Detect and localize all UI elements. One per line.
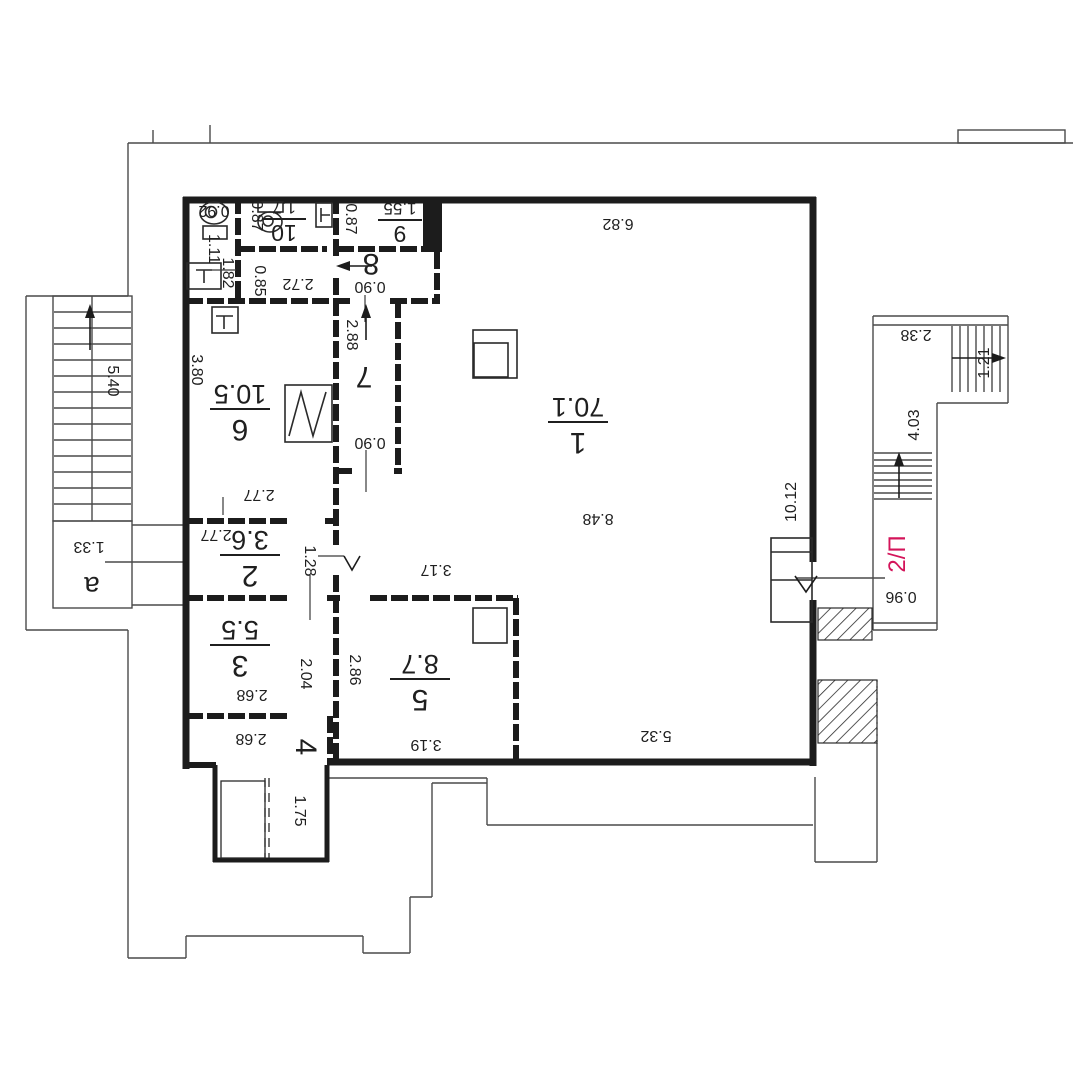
room-area: 10.5 xyxy=(214,379,267,409)
lower-floor-outline xyxy=(26,143,877,958)
dimension-label: 2.38 xyxy=(900,326,931,343)
dimension-label: 0.87 xyxy=(248,200,265,231)
dimension-label: 6.82 xyxy=(602,215,633,232)
dimension-label: 2.68 xyxy=(235,730,266,747)
sink-icon-2 xyxy=(316,203,332,227)
room-label-3: 35.5 xyxy=(210,615,270,682)
upper-floor-edge-step xyxy=(958,130,1065,143)
left-staircase xyxy=(53,296,186,608)
room-number: 8 xyxy=(363,247,380,280)
dimension-label: 3.17 xyxy=(420,561,451,578)
dimension-label: 3.19 xyxy=(410,736,441,753)
dimension-label: 2.77 xyxy=(200,526,231,543)
room-label-9: 91.55 xyxy=(378,199,422,247)
dimension-label: 0.92 xyxy=(198,202,229,219)
balcony-window xyxy=(221,778,269,858)
dimension-label: 10.12 xyxy=(783,482,800,522)
upper-floor-edge-line xyxy=(128,125,1073,143)
corridor-up-arrow xyxy=(361,304,371,340)
vent-shaft-icon-2 xyxy=(473,608,507,643)
room-number: 6 xyxy=(232,413,249,446)
sink-icon-3 xyxy=(212,307,238,333)
room-number: 4 xyxy=(289,739,322,756)
room-area: 70.1 xyxy=(552,392,605,422)
dimension-label: 2.72 xyxy=(282,275,313,292)
dimension-label: 0.85 xyxy=(251,265,268,296)
room-number: 1 xyxy=(570,426,587,459)
dimension-label: 2.88 xyxy=(343,319,360,350)
hatch-block-lower xyxy=(818,680,877,743)
room-number: 3 xyxy=(232,649,249,682)
dimension-label: 2.86 xyxy=(346,654,363,685)
dimension-label: 2.04 xyxy=(297,658,314,689)
vent-shaft-icon xyxy=(473,330,517,378)
dimension-label: 0.87 xyxy=(342,203,359,234)
dimension-label: 8.48 xyxy=(582,510,613,527)
dimension-label: 1.75 xyxy=(291,795,308,826)
duct-box-icon xyxy=(771,538,812,622)
dimension-label: 1.82 xyxy=(219,257,236,288)
room-number: 2 xyxy=(242,559,259,592)
dimension-leaders xyxy=(200,270,366,620)
dimension-label: 0.90 xyxy=(354,434,385,451)
dimension-label: 5.40 xyxy=(104,365,121,396)
room-number: 5 xyxy=(412,683,429,716)
room-labels: 170.123.635.5458.7610.57891.55101.7 xyxy=(210,198,608,755)
hatched-wall-blocks xyxy=(818,608,877,743)
dimension-label: 1.28 xyxy=(301,545,318,576)
floor-plan-page: 170.123.635.5458.7610.57891.55101.7 6.82… xyxy=(0,0,1086,1080)
room-area: 3.6 xyxy=(231,525,269,555)
stair-floor-label: 2/П xyxy=(884,535,911,572)
room-label-10: 101.7 xyxy=(262,198,306,246)
dimension-label: 0.96 xyxy=(885,588,916,605)
right-stairs-up-arrow xyxy=(894,452,904,498)
dimension-label: 5.32 xyxy=(640,727,671,744)
dimension-label: 4.03 xyxy=(906,409,923,440)
stove-icon xyxy=(285,385,332,442)
room-label-4: 4 xyxy=(289,739,322,756)
hatch-block-upper xyxy=(818,608,872,640)
entrance-letter-label: a xyxy=(84,571,100,602)
dimension-label: 1.21 xyxy=(976,347,993,378)
room-area: 1.7 xyxy=(272,198,296,217)
room-number: 9 xyxy=(394,221,407,247)
pier-room9 xyxy=(423,197,442,252)
room-number: 7 xyxy=(356,360,373,393)
dimension-label: 1.33 xyxy=(73,538,104,555)
room-label-1: 170.1 xyxy=(548,392,608,459)
lower-stair-treads xyxy=(874,453,932,499)
sink-icon xyxy=(187,263,221,289)
exterior-walls xyxy=(183,197,816,862)
room-label-5: 58.7 xyxy=(390,649,450,716)
room-label-6: 610.5 xyxy=(210,379,270,446)
room-area: 1.55 xyxy=(383,199,416,218)
special-labels: 2/Пa xyxy=(84,535,911,602)
door-swing-arrow xyxy=(344,556,360,570)
dimension-label: 2.77 xyxy=(243,486,274,503)
landing-connect-lines xyxy=(105,525,186,605)
dimension-label: 0.90 xyxy=(354,278,385,295)
room-area: 8.7 xyxy=(401,649,439,679)
dimension-label: 3.80 xyxy=(188,354,205,385)
room-label-8: 8 xyxy=(363,247,380,280)
room-number: 10 xyxy=(271,220,297,246)
floor-plan-canvas: 170.123.635.5458.7610.57891.55101.7 6.82… xyxy=(0,0,1086,1080)
balcony-walls xyxy=(213,765,329,862)
room-label-7: 7 xyxy=(356,360,373,393)
stairs-up-arrow xyxy=(85,304,95,350)
dimension-label: 2.68 xyxy=(236,686,267,703)
room-area: 5.5 xyxy=(221,615,259,645)
